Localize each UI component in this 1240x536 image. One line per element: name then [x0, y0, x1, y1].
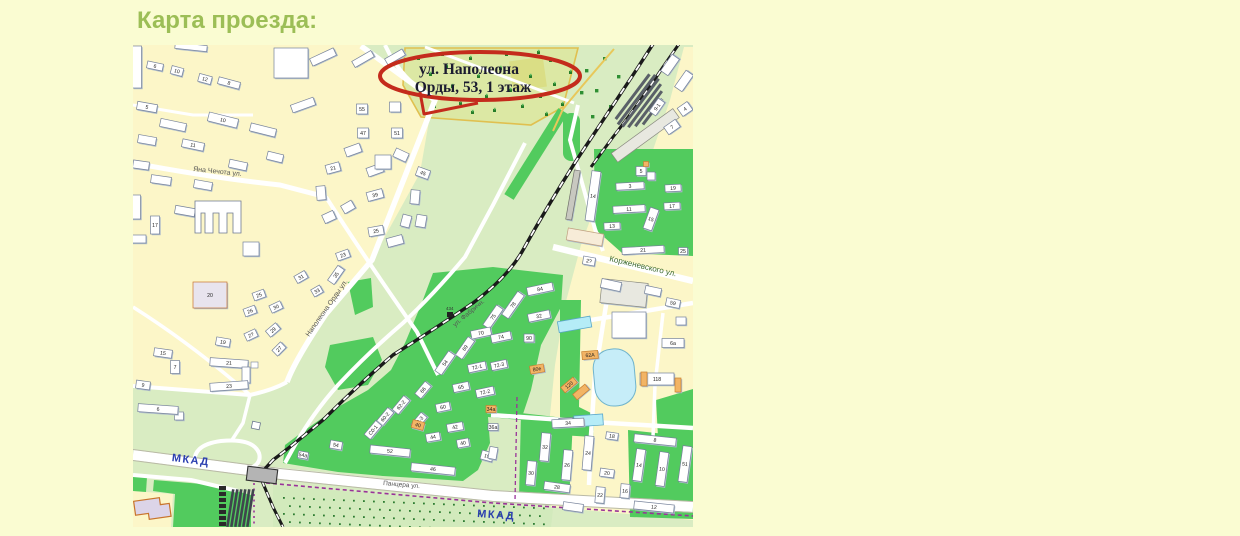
- svg-text:62A: 62A: [585, 352, 595, 359]
- svg-text:6: 6: [156, 407, 159, 413]
- svg-text:14: 14: [590, 193, 597, 200]
- svg-text:47: 47: [360, 131, 366, 137]
- svg-text:32: 32: [542, 445, 548, 451]
- svg-text:3: 3: [628, 184, 631, 190]
- svg-text:51: 51: [394, 131, 400, 137]
- svg-text:13: 13: [609, 224, 615, 230]
- svg-text:118: 118: [653, 377, 661, 383]
- svg-text:18: 18: [609, 433, 616, 440]
- svg-text:42: 42: [452, 424, 459, 431]
- svg-text:20: 20: [207, 293, 213, 299]
- svg-text:34a: 34a: [487, 407, 496, 413]
- svg-text:36a: 36a: [489, 425, 498, 431]
- svg-text:90: 90: [526, 336, 532, 342]
- svg-text:6a: 6a: [670, 341, 676, 347]
- svg-text:19: 19: [670, 186, 676, 192]
- svg-text:22: 22: [597, 493, 603, 499]
- svg-text:30: 30: [528, 471, 534, 477]
- svg-text:21: 21: [226, 361, 232, 367]
- svg-text:46: 46: [430, 467, 436, 474]
- svg-text:20: 20: [604, 470, 611, 477]
- svg-text:11: 11: [626, 207, 632, 213]
- svg-text:23: 23: [226, 384, 232, 390]
- svg-text:10: 10: [659, 466, 666, 473]
- svg-text:7: 7: [174, 365, 177, 371]
- svg-text:54: 54: [332, 442, 339, 449]
- svg-text:26: 26: [564, 463, 570, 469]
- svg-text:24: 24: [585, 451, 591, 457]
- svg-text:17: 17: [152, 223, 158, 229]
- svg-text:28: 28: [554, 484, 561, 491]
- svg-text:40: 40: [460, 440, 467, 447]
- svg-text:2?: 2?: [585, 258, 592, 265]
- svg-text:15: 15: [160, 350, 167, 357]
- svg-text:21: 21: [640, 248, 646, 254]
- svg-text:12: 12: [651, 505, 657, 512]
- svg-text:434: 434: [446, 306, 454, 311]
- svg-text:17: 17: [669, 204, 675, 210]
- svg-text:52: 52: [387, 449, 393, 456]
- svg-text:25: 25: [373, 228, 380, 235]
- svg-text:19: 19: [219, 339, 226, 346]
- svg-text:34: 34: [565, 421, 571, 427]
- svg-text:51: 51: [682, 461, 689, 468]
- svg-text:55: 55: [359, 107, 365, 113]
- svg-text:Орды, 53, 1 этаж: Орды, 53, 1 этаж: [415, 79, 532, 96]
- svg-text:14: 14: [636, 462, 643, 469]
- svg-text:44: 44: [430, 434, 437, 441]
- svg-text:ул. Наполеона: ул. Наполеона: [419, 61, 519, 78]
- svg-text:25: 25: [680, 249, 686, 255]
- svg-text:16: 16: [622, 489, 628, 495]
- svg-text:5: 5: [640, 169, 643, 175]
